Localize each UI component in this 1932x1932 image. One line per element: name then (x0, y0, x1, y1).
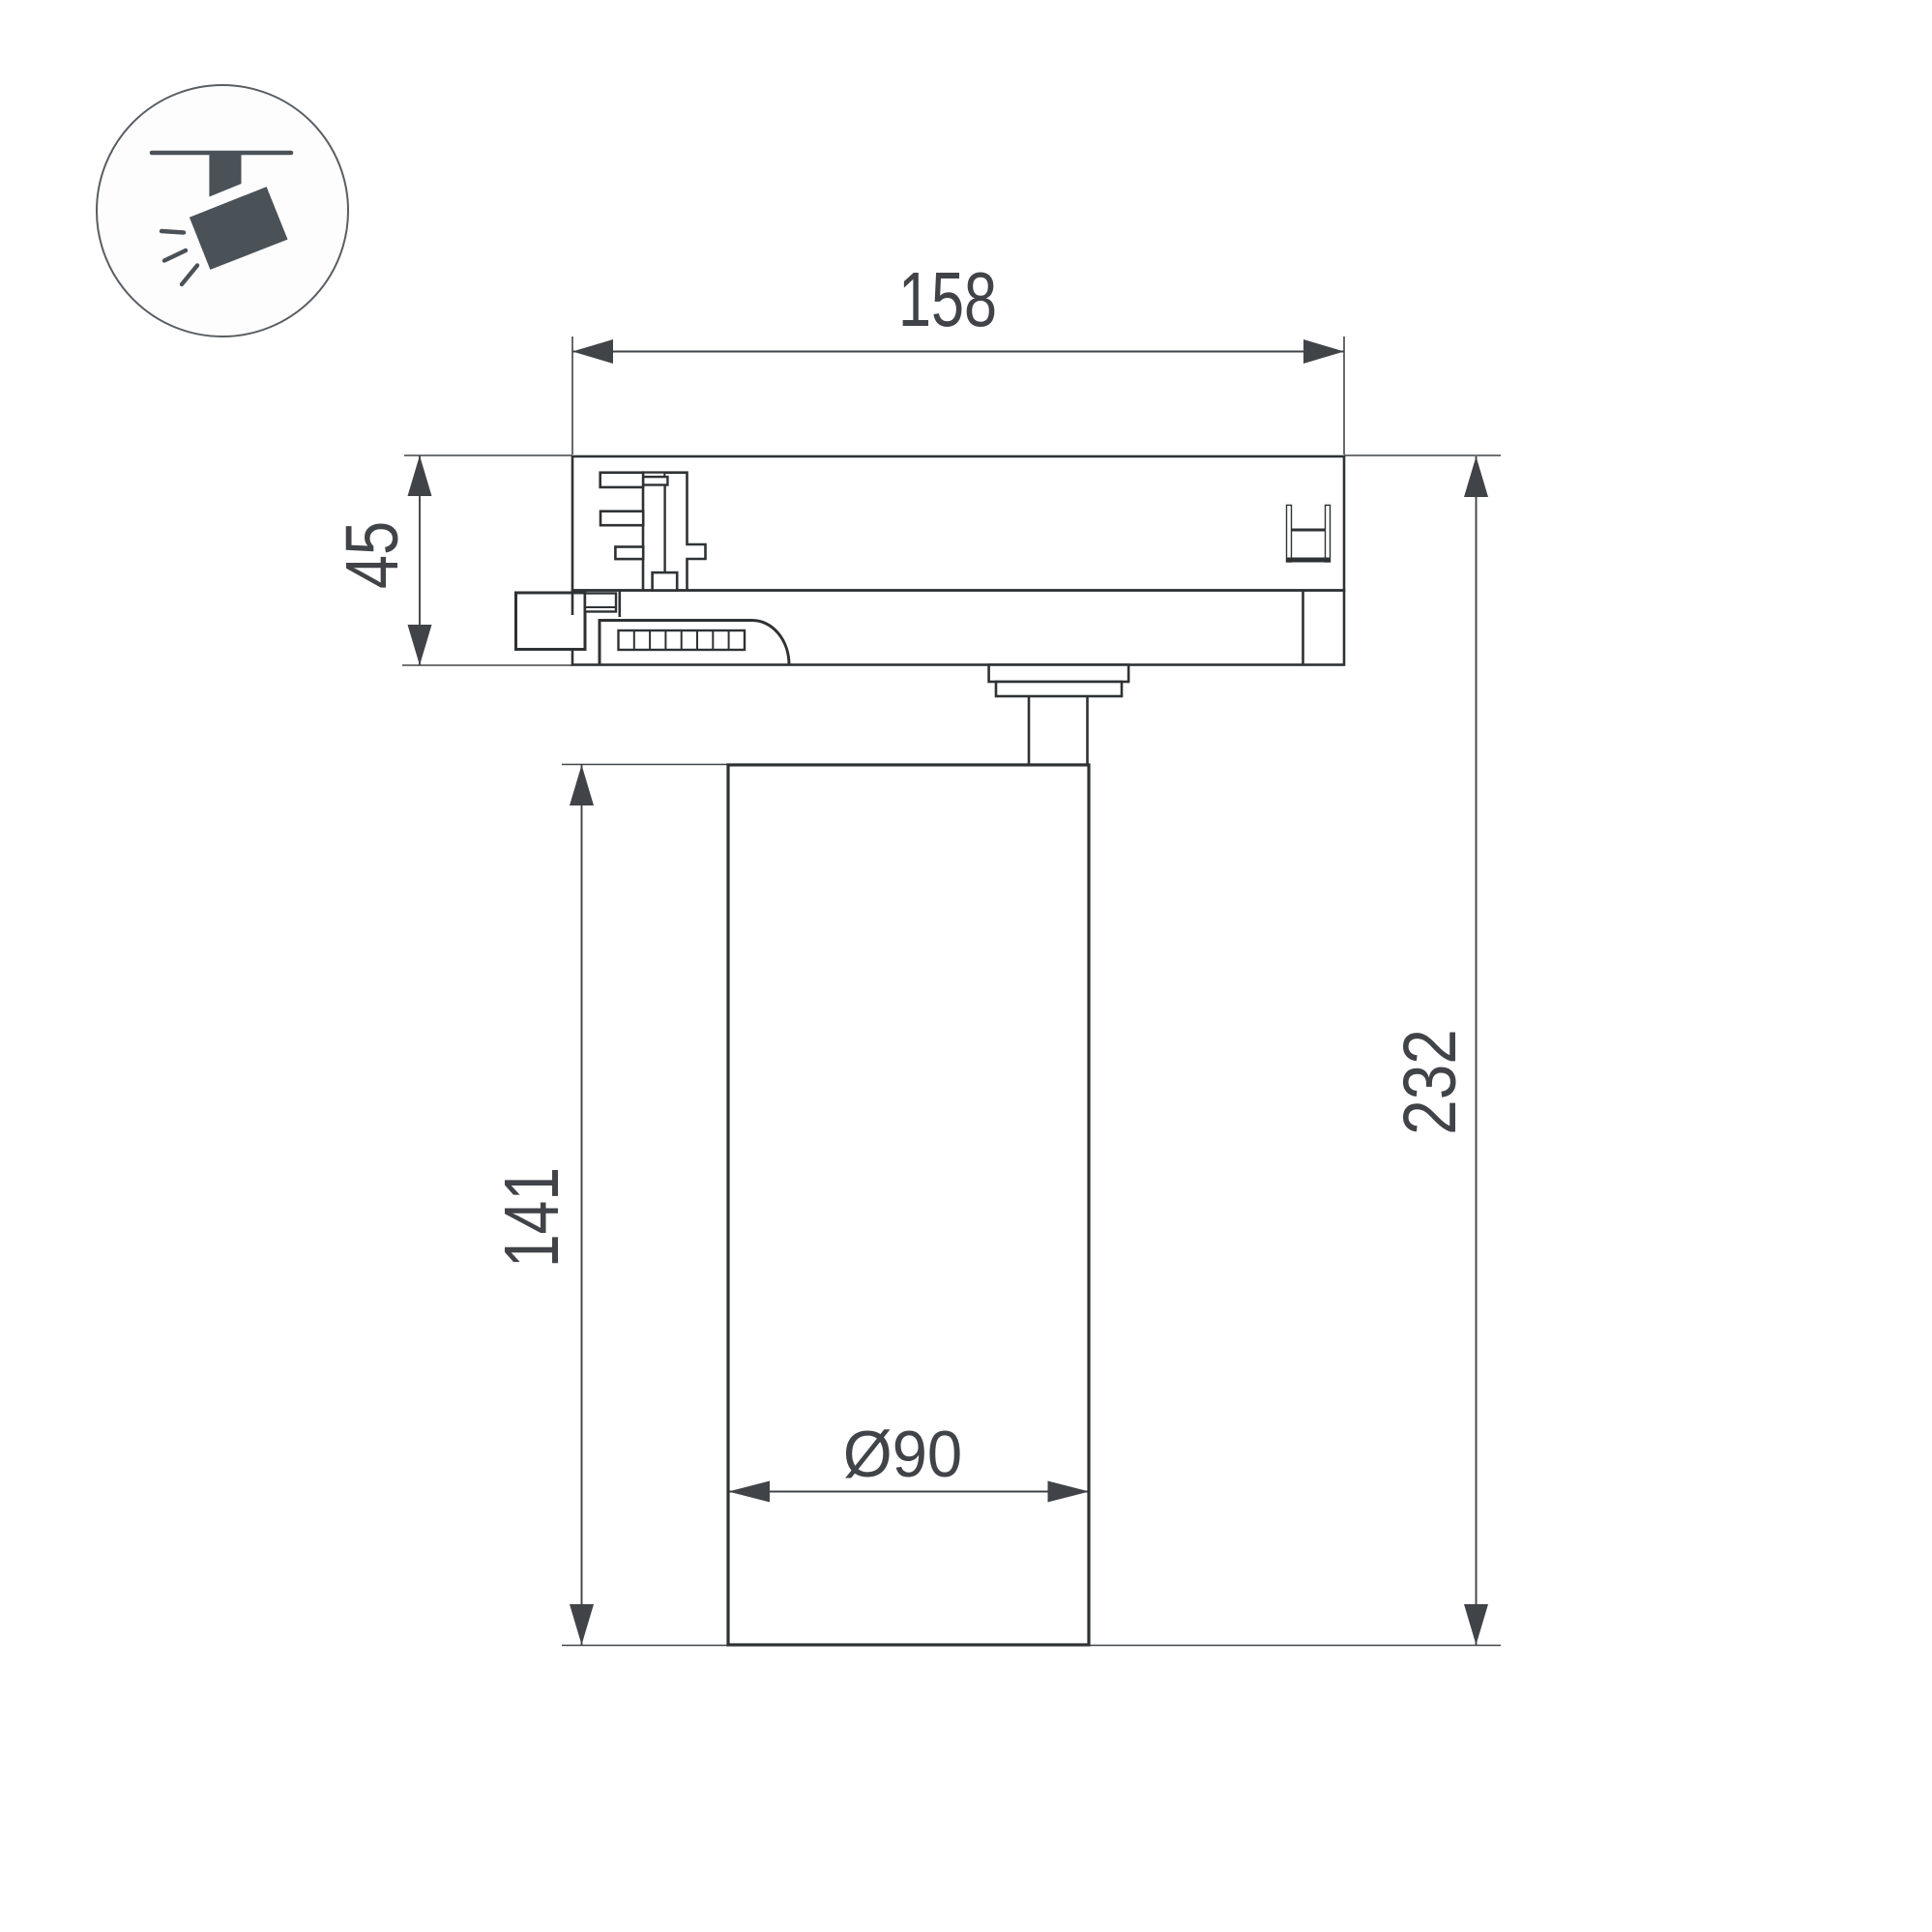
svg-text:232: 232 (1389, 1029, 1472, 1135)
svg-text:158: 158 (898, 257, 997, 343)
svg-text:141: 141 (489, 1167, 575, 1268)
svg-text:45: 45 (330, 521, 413, 589)
svg-text:Ø90: Ø90 (843, 1419, 962, 1491)
